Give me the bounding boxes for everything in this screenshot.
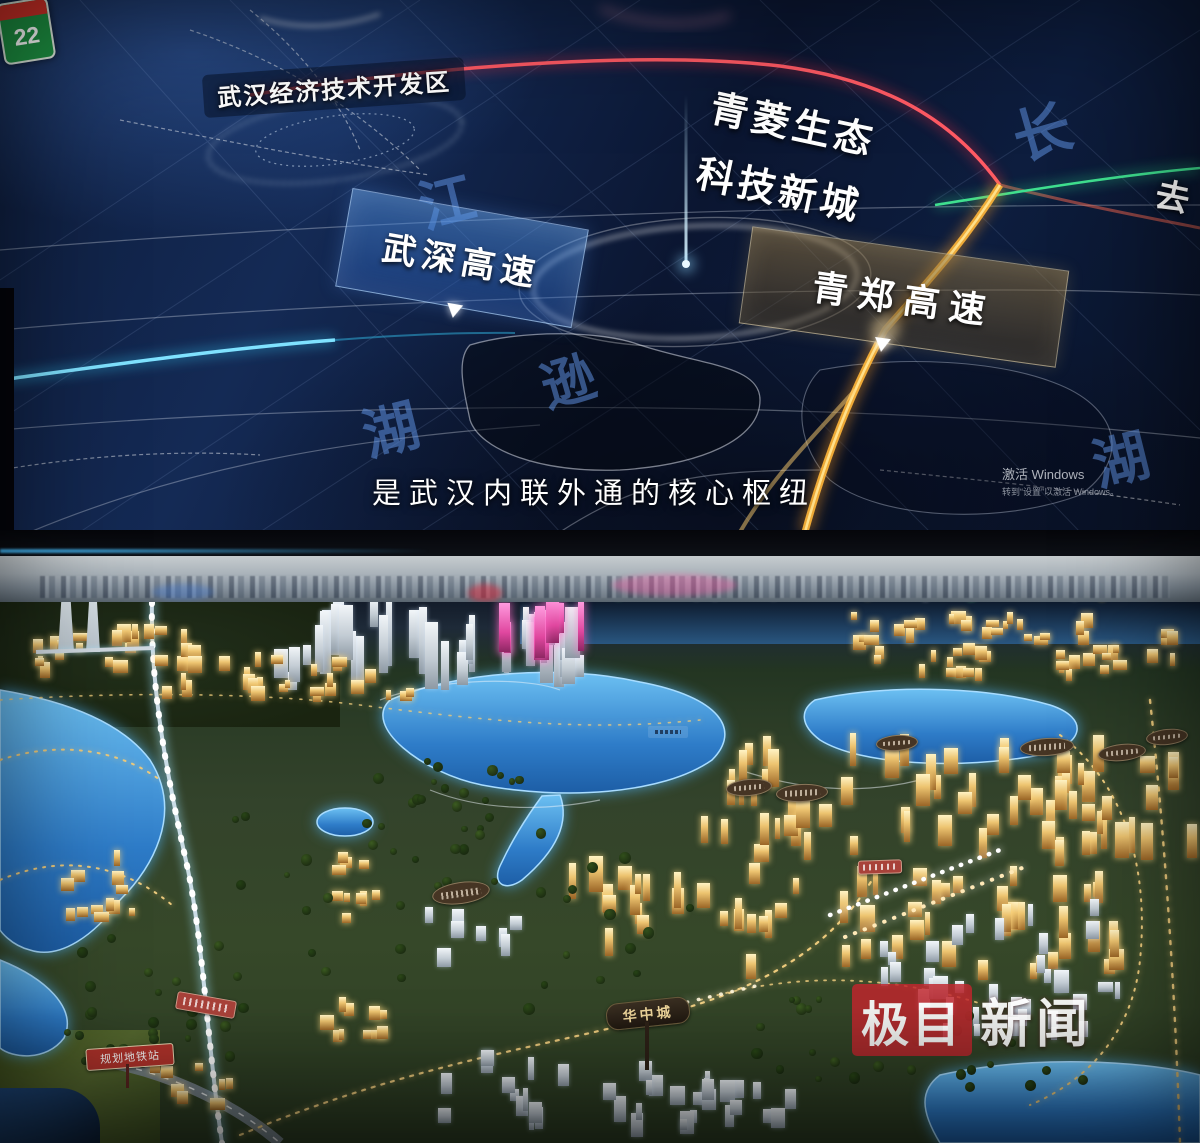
city-scale-model: 华中城 规划地铁站 极目 新闻 (0, 602, 1200, 1143)
banner-pointer-icon (873, 337, 891, 353)
water-name-label (648, 726, 688, 738)
small-red-sign (858, 859, 902, 875)
reflection-smudge (612, 574, 737, 596)
exhibition-hall-photo: 长 江 逊 湖 湖 武汉经济技术开发区 青菱生态 科技新城 武深高速 青郑高速 … (0, 0, 1200, 1143)
windows-activation-watermark: 激活 Windows 转到“设置”以激活 Windows。 (1002, 464, 1119, 498)
shield-number: 22 (0, 13, 53, 58)
jimu-news-watermark: 极目 新闻 (852, 982, 1092, 1057)
reflection-smudge (152, 584, 214, 600)
activation-line2: 转到“设置”以激活 Windows。 (1002, 485, 1119, 498)
beacon (677, 95, 695, 273)
reflection-smudge (468, 584, 502, 602)
glass-reflection-streak (0, 549, 430, 553)
sign-post (126, 1064, 129, 1088)
watermark-box-text: 极目 (861, 999, 963, 1052)
sign-post (645, 1022, 649, 1070)
banner-wushen-text: 武深高速 (379, 220, 545, 296)
highway-shield-icon: 22 (0, 0, 57, 66)
banner-qingzheng-text: 青郑高速 (809, 258, 998, 335)
model-streetlight-layer (0, 602, 1200, 1143)
map-lake-outline (462, 334, 760, 471)
light-smear (260, 14, 380, 26)
pink-smear (600, 8, 730, 23)
screen-bezel-left (0, 288, 14, 532)
banner-pointer-icon (445, 303, 463, 320)
display-screen: 长 江 逊 湖 湖 武汉经济技术开发区 青菱生态 科技新城 武深高速 青郑高速 … (0, 0, 1200, 532)
activation-line1: 激活 Windows (1002, 464, 1119, 483)
watermark-plain-text: 新闻 (980, 982, 1092, 1057)
map-route-cyan (0, 333, 515, 380)
watermark-red-box: 极目 (852, 984, 972, 1056)
screen-caption: 是武汉内联外通的核心枢纽 (372, 470, 816, 512)
sign-planned-metro-text: 规划地铁站 (100, 1047, 161, 1067)
